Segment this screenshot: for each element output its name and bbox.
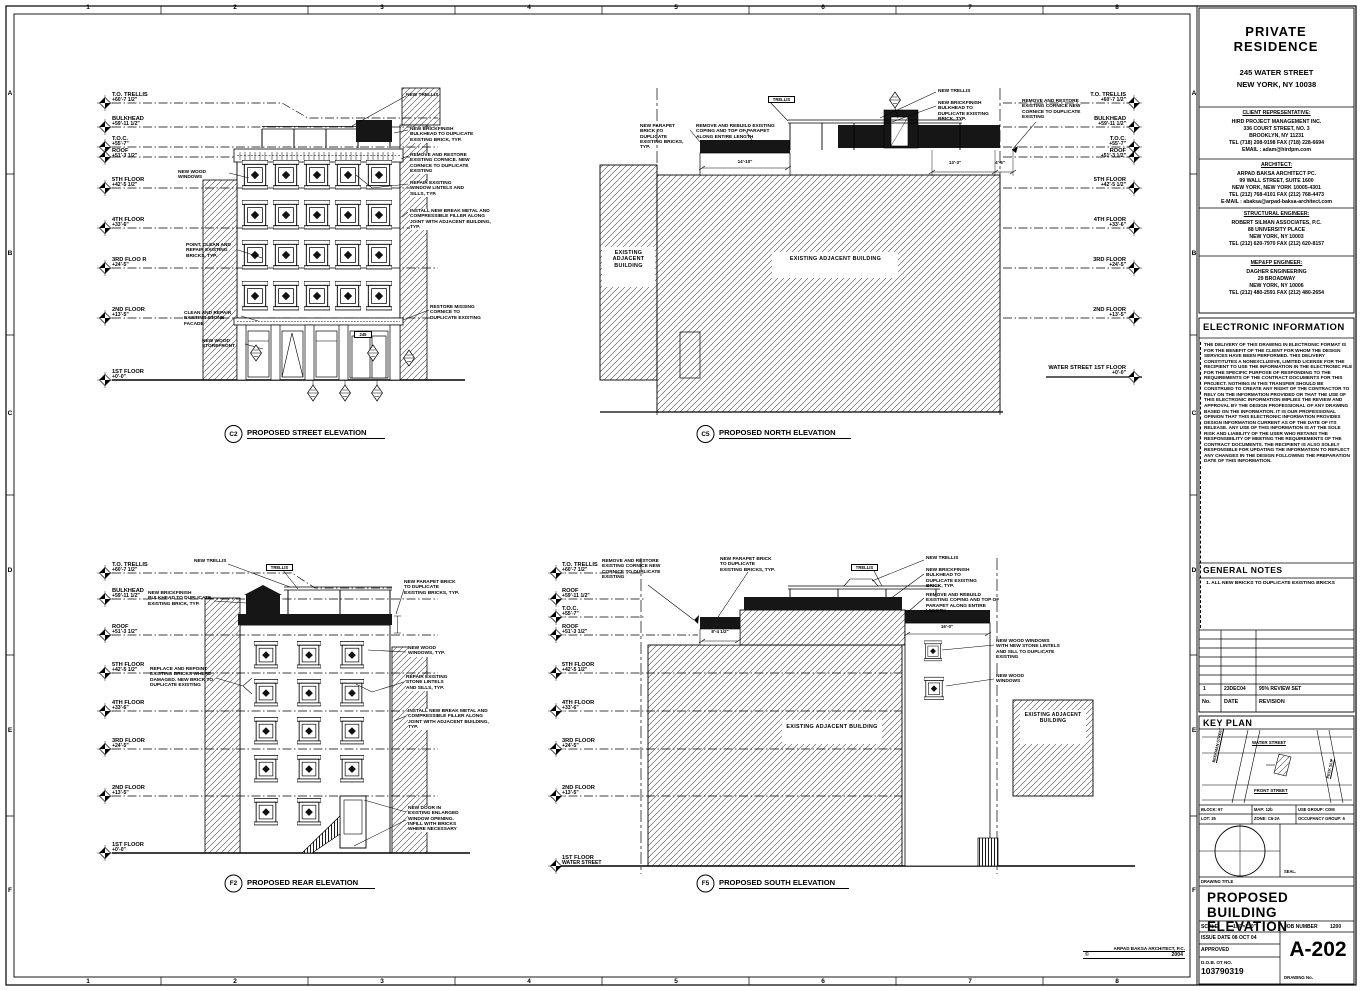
col-label-bottom: 7 (962, 978, 978, 985)
annotation: RESTORE MISSING CORNICE TO DUPLICATE EXI… (430, 305, 482, 321)
level-label: 2ND FLOOR+13'-5" (112, 785, 192, 797)
col-label-bottom: 8 (1109, 978, 1125, 985)
copyright-year: 2004 (1171, 952, 1183, 958)
client-line: TEL (718) 208-9198 FAX (718) 228-6694 (1199, 140, 1354, 146)
client-line: HIRD PROJECT MANAGEMENT INC. (1199, 119, 1354, 125)
annotation: CLEAN AND REPAIR EXISTING STONE FACADE (184, 311, 242, 327)
sheet-number-label: DRAWING No. (1284, 975, 1313, 980)
electronic-info-header: ELECTRONIC INFORMATION (1203, 322, 1345, 333)
col-label-bottom: 4 (521, 978, 537, 985)
client-line: EMAIL : adam@hirdpm.com (1199, 147, 1354, 153)
elevation-tag-f5: F5 (698, 880, 713, 887)
level-label: 3RD FLOOR+24'-5" (1048, 257, 1126, 269)
level-label: 4TH FLOOR+33'-6" (112, 700, 192, 712)
existing-building-label: EXISTING ADJACENT BUILDING (603, 250, 654, 269)
project-name: PRIVATE RESIDENCE (1216, 24, 1336, 54)
row-label-left: D (6, 567, 14, 574)
annotation: REMOVE AND REBUILD EXISTING COPING AND T… (696, 124, 776, 140)
col-label-top: 1 (80, 4, 96, 11)
row-label-right: D (1190, 567, 1198, 574)
address-tag: 245 (354, 331, 372, 338)
drawing-sheet: 1 2 3 4 5 6 7 8 1 2 3 4 5 6 7 8 A B C D … (0, 0, 1362, 991)
annotation: NEW WOOD WINDOWS (178, 170, 230, 181)
copyright-block: ARPAD BAKSA ARCHITECT, P.C. © 2004 (1083, 946, 1185, 959)
col-label-bottom: 6 (815, 978, 831, 985)
level-label: WATER STREET 1ST FLOOR+0'-0" (1028, 365, 1126, 377)
street-label-water: WATER STREET (1252, 740, 1286, 745)
level-label: T.O. TRELLIS+60'-7 1/2" (112, 92, 192, 104)
col-label-top: 4 (521, 4, 537, 11)
architect-line: E-MAIL : abaksa@arpad-baksa-architect.co… (1199, 199, 1354, 205)
dimension: 4'-5" (986, 160, 1014, 165)
annotation: NEW TRELLIS (406, 93, 448, 98)
revision-no: 1 (1203, 686, 1206, 692)
elevation-title-c2: PROPOSED STREET ELEVATION (247, 428, 385, 439)
job-number-label: JOB NUMBER (1284, 924, 1318, 930)
annotation: NEW DOOR IN EXISTING ENLARGED WINDOW OPE… (408, 806, 460, 832)
architect-line: ARPAD BAKSA ARCHITECT PC. (1199, 171, 1354, 177)
annotation: REPAIR EXISTING STONE LINTELS AND SILLS,… (406, 675, 452, 691)
annotation: NEW TRELLIS (926, 556, 970, 561)
structural-line: ROBERT SILMAN ASSOCIATES, P.C. (1199, 220, 1354, 226)
annotation: NEW BRICKFINISH BULKHEAD TO DUPLICATE EX… (148, 591, 212, 607)
level-label: 4TH FLOOR+33'-6" (562, 700, 634, 712)
project-address: 245 WATER STREET (1199, 68, 1354, 77)
mep-line: TEL (212) 480-2591 FAX (212) 480-2654 (1199, 290, 1354, 296)
row-label-left: A (6, 90, 14, 97)
dimension: 8'-4 1/2" (700, 629, 740, 634)
client-line: 336 COURT STREET, NO. 3 (1199, 126, 1354, 132)
level-label: 3RD FLOOR+24'-5" (112, 738, 192, 750)
col-label-bottom: 3 (374, 978, 390, 985)
elevation-title-f2: PROPOSED REAR ELEVATION (247, 878, 375, 889)
electronic-info-body: THE DELIVERY OF THIS DRAWING IN ELECTRON… (1204, 342, 1353, 464)
col-label-top: 2 (227, 4, 243, 11)
annotation: REMOVE AND RESTORE EXISTING CORNICE NEW … (1022, 99, 1082, 120)
dimension: 14'-10" (720, 159, 770, 164)
level-label: BULKHEAD+59'-11 1/2" (112, 116, 192, 128)
trellis-tag: TRELLIS (768, 96, 795, 103)
elevation-tag-c2: C2 (226, 431, 241, 438)
annotation: NEW PARAPET BRICK TO DUPLICATE EXISTING … (640, 124, 690, 150)
structural-line: 88 UNIVERSITY PLACE (1199, 227, 1354, 233)
copyright-symbol: © (1085, 952, 1089, 958)
row-label-right: C (1190, 410, 1198, 417)
row-label-left: B (6, 250, 14, 257)
annotation: REMOVE AND REBUILD EXISTING COPING AND T… (926, 593, 1000, 614)
dimension: 16'-0" (932, 624, 962, 629)
existing-building-label: EXISTING ADJACENT BUILDING (786, 724, 878, 730)
level-label: 2ND FLOOR+13'-5" (1048, 307, 1126, 319)
annotation: REMOVE AND RESTORE EXISTING CORNICE. NEW… (410, 153, 474, 174)
structural-line: TEL (212) 620-7970 FAX (212) 620-8157 (1199, 241, 1354, 247)
annotation: REPLACE AND REPOINT EXISTING BRICKS WHER… (150, 667, 214, 688)
keyplan-zone: ZONE: C6-2A (1254, 816, 1280, 821)
level-label: ROOF+51'-3 1/2" (112, 148, 192, 160)
architect-line: 99 WALL STREET, SUITE 1600 (1199, 178, 1354, 184)
mep-line: NEW YORK, NY 10006 (1199, 283, 1354, 289)
row-label-right: F (1190, 887, 1198, 894)
annotation: NEW WOOD WINDOWS, TYP. (408, 646, 452, 657)
annotation: REPAIR EXISTING WINDOW LINTELS AND SILLS… (410, 181, 466, 197)
revision-col-date: DATE (1224, 699, 1238, 705)
annotation: NEW TRELLIS (938, 89, 982, 94)
mep-header: MEP&FP ENGINEER: (1199, 260, 1354, 266)
trellis-tag: TRELLIS (266, 564, 293, 571)
annotation: NEW PARAPET BRICK TO DUPLICATE EXISTING … (720, 557, 778, 573)
annotation: NEW WOOD WINDOWS WITH NEW STONE LINTELS … (996, 639, 1062, 660)
revision-col-no: No. (1202, 699, 1211, 705)
mep-line: DAGHER ENGINEERING (1199, 269, 1354, 275)
elevation-title-c5: PROPOSED NORTH ELEVATION (719, 428, 851, 439)
mep-line: 29 BROADWAY (1199, 276, 1354, 282)
col-label-bottom: 1 (80, 978, 96, 985)
keyplan-occupancy: OCCUPANCY GROUP: 6 (1298, 816, 1345, 821)
keyplan-use-group: USE GROUP: COM (1298, 807, 1335, 812)
architect-header: ARCHITECT: (1199, 162, 1354, 168)
annotation: NEW BRICKFINISH BULKHEAD TO DUPLICATE EX… (410, 127, 474, 143)
keyplan-header: KEY PLAN (1203, 718, 1252, 728)
level-label: 3RD FLOO R+24'-5" (112, 257, 192, 269)
col-label-top: 6 (815, 4, 831, 11)
elevation-tag-f2: F2 (226, 880, 241, 887)
structural-line: NEW YORK, NY 10003 (1199, 234, 1354, 240)
row-label-left: E (6, 727, 14, 734)
issue-date: ISSUE DATE 08 OCT 04 (1201, 935, 1256, 941)
row-label-left: C (6, 410, 14, 417)
trellis-tag: TRELLIS (851, 564, 878, 571)
revision-desc: 95% REVIEW SET (1259, 686, 1301, 692)
annotation: NEW TRELLIS (194, 559, 238, 564)
level-label: 5TH FLOOR+42'-5 1/2" (1048, 177, 1126, 189)
keyplan-map: MAP: 12b (1254, 807, 1273, 812)
keyplan-block: BLOCK: 97 (1201, 807, 1223, 812)
col-label-bottom: 5 (668, 978, 684, 985)
level-label: 1ST FLOORWATER STREET (562, 855, 644, 867)
level-label: 3RD FLOOR+24'-5" (562, 738, 634, 750)
project-address: NEW YORK, NY 10038 (1199, 80, 1354, 89)
annotation: INSTALL NEW BREAK METAL AND COMPRESSIBLE… (408, 709, 494, 730)
architect-line: NEW YORK, NEW YORK 10005-4301 (1199, 185, 1354, 191)
drawing-title-label: DRAWING TITLE (1201, 879, 1233, 884)
annotation: NEW BRICKFINISH BULKHEAD TO DUPLICATE EX… (926, 568, 988, 589)
annotation: POINT, CLEAN AND REPAIR EXISTING BRICKS,… (186, 243, 240, 259)
job-number-value: 1200 (1330, 924, 1341, 930)
scale-value: 1/8"=1'-0" (1233, 924, 1256, 930)
level-label: 1ST FLOOR+0'-0" (112, 369, 192, 381)
general-note: 1. ALL NEW BRICKS TO DUPLICATE EXISTING … (1206, 581, 1335, 586)
level-label: ROOF+59'-11 1/2" (562, 588, 634, 600)
elevation-title-f5: PROPOSED SOUTH ELEVATION (719, 878, 849, 889)
seal-label: SEAL. (1284, 869, 1296, 874)
dob-number-label: D.O.B. OT NO. (1201, 960, 1232, 965)
row-label-left: F (6, 887, 14, 894)
level-label: 5TH FLOOR+42'-5 1/2" (562, 662, 634, 674)
revision-col-rev: REVISION (1259, 699, 1285, 705)
architect-line: TEL (212) 768-4101 FAX (212) 768-4473 (1199, 192, 1354, 198)
annotation: NEW BRICKFINISH BULKHEAD TO DUPLICATE EX… (938, 101, 1000, 122)
row-label-right: A (1190, 90, 1198, 97)
level-label: T.O.C.+55'-7" (112, 136, 192, 148)
level-label: 2ND FLOOR+13'-5" (562, 785, 634, 797)
annotation: NEW WOOD STOREFRONT (202, 339, 244, 350)
scale-label: SCALE (1201, 924, 1218, 930)
client-header: CLIENT REPRESENTATIVE: (1199, 110, 1354, 116)
col-label-top: 3 (374, 4, 390, 11)
level-label: 2ND FLOOR+13'-5" (112, 307, 192, 319)
elevation-tag-c5: C5 (698, 431, 713, 438)
approved-label: APPROVED (1201, 947, 1229, 953)
level-label: T.O.C.+55'-7" (562, 606, 634, 618)
row-label-right: B (1190, 250, 1198, 257)
annotation: INSTALL NEW BREAK METAL AND COMPRESSIBLE… (410, 209, 500, 230)
annotation: NEW WOOD WINDOWS (996, 674, 1034, 685)
street-label-front: FRONT STREET (1254, 788, 1288, 793)
margin-ticks (1200, 342, 1203, 628)
structural-header: STRUCTURAL ENGINEER: (1199, 211, 1354, 217)
level-label: 4TH FLOOR+33'-6" (112, 217, 192, 229)
col-label-bottom: 2 (227, 978, 243, 985)
existing-building-label: EXISTING ADJACENT BUILDING (778, 256, 893, 262)
dimension: 13'-3" (938, 160, 972, 165)
level-label: ROOF+51'-3 1/2" (112, 624, 192, 636)
annotation: REMOVE AND RESTORE EXISTING CORNICE NEW … (602, 559, 664, 580)
sheet-number: A-202 (1282, 938, 1354, 962)
level-label: ROOF+51'-3 1/2" (562, 624, 634, 636)
existing-building-label: EXISTING ADJACENT BUILDING (1024, 712, 1082, 725)
level-label: T.O. TRELLIS+60'-7 1/2" (112, 562, 192, 574)
keyplan-lot: LOT: 35 (1201, 816, 1216, 821)
client-line: BROOKLYN, NY 11231 (1199, 133, 1354, 139)
level-label: 1ST FLOOR+0'-0" (112, 842, 192, 854)
col-label-top: 8 (1109, 4, 1125, 11)
row-label-right: E (1190, 727, 1198, 734)
general-notes-header: GENERAL NOTES (1203, 565, 1283, 575)
drawing-title: PROPOSED BUILDING ELEVATION (1207, 891, 1349, 935)
dob-number: 103790319 (1201, 966, 1244, 976)
level-label: 4TH FLOOR+33'-6" (1048, 217, 1126, 229)
col-label-top: 7 (962, 4, 978, 11)
level-label: T.O.C.+55'-7" (1048, 136, 1126, 148)
revision-date: 23DEC04 (1224, 686, 1246, 692)
col-label-top: 5 (668, 4, 684, 11)
annotation: NEW PARAPET BRICK TO DUPLICATE EXISTING … (404, 580, 460, 596)
level-label: ROOF+51'-3 1/2" (1048, 148, 1126, 160)
